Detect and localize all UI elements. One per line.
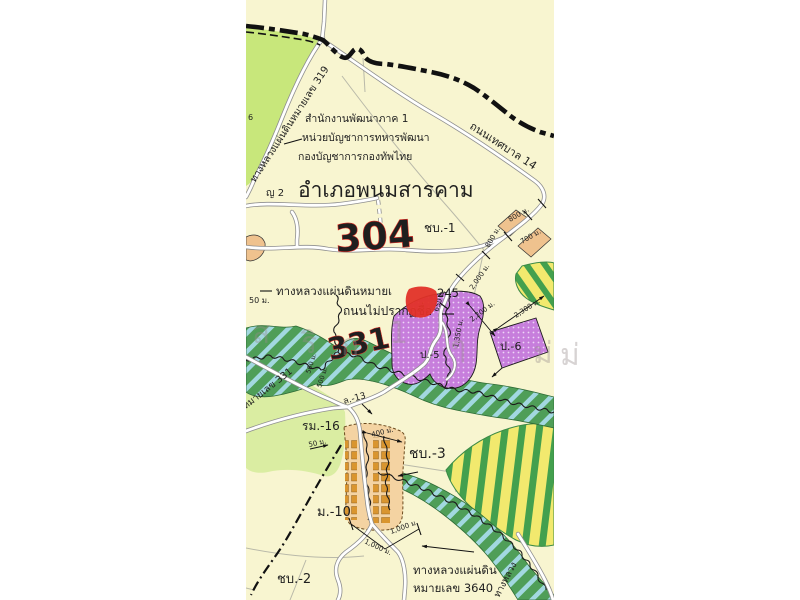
label-m10: ม.-10 (317, 505, 351, 520)
page: ทางหลวงแผ่นดินหมายเลข 319 ถนนเทศบาล 14 ส… (0, 0, 800, 600)
label-hwy3640-line1: ทางหลวงแผ่นดิน (413, 563, 497, 577)
label-six: 6 (248, 113, 253, 122)
label-hwy3245-part1: ทางหลวงแผ่นดินหมายเ (276, 284, 392, 298)
label-agency-2: หน่วยบัญชาการทหารพัฒนา (302, 132, 430, 144)
label-p5: ป.-5 (420, 350, 440, 361)
label-chb3: ชบ.-3 (409, 446, 446, 462)
label-agency-1: สำนักงานพัฒนาภาค 1 (305, 113, 408, 125)
label-chb1: ชบ.-1 (424, 221, 456, 235)
red-number-304: 304 (334, 212, 416, 261)
label-p6: ป.-6 (500, 340, 521, 353)
label-agency-3: กองบัญชาการกองทัพไทย (298, 150, 412, 163)
label-50m-a: 50 ม. (249, 296, 270, 305)
label-chb2: ชบ.-2 (277, 572, 311, 587)
watermark-glyph: ม่ (560, 332, 580, 379)
label-yo2: ญ 2 (266, 188, 284, 199)
district-title: อำเภอพนมสารคาม (298, 178, 474, 202)
map-svg: ทางหลวงแผ่นดินหมายเลข 319 ถนนเทศบาล 14 ส… (246, 0, 554, 600)
label-hwy3640-line2: หมายเลข 3640 (413, 581, 493, 595)
map-image: ทางหลวงแผ่นดินหมายเลข 319 ถนนเทศบาล 14 ส… (246, 0, 554, 600)
label-rm16: รม.-16 (302, 419, 340, 433)
